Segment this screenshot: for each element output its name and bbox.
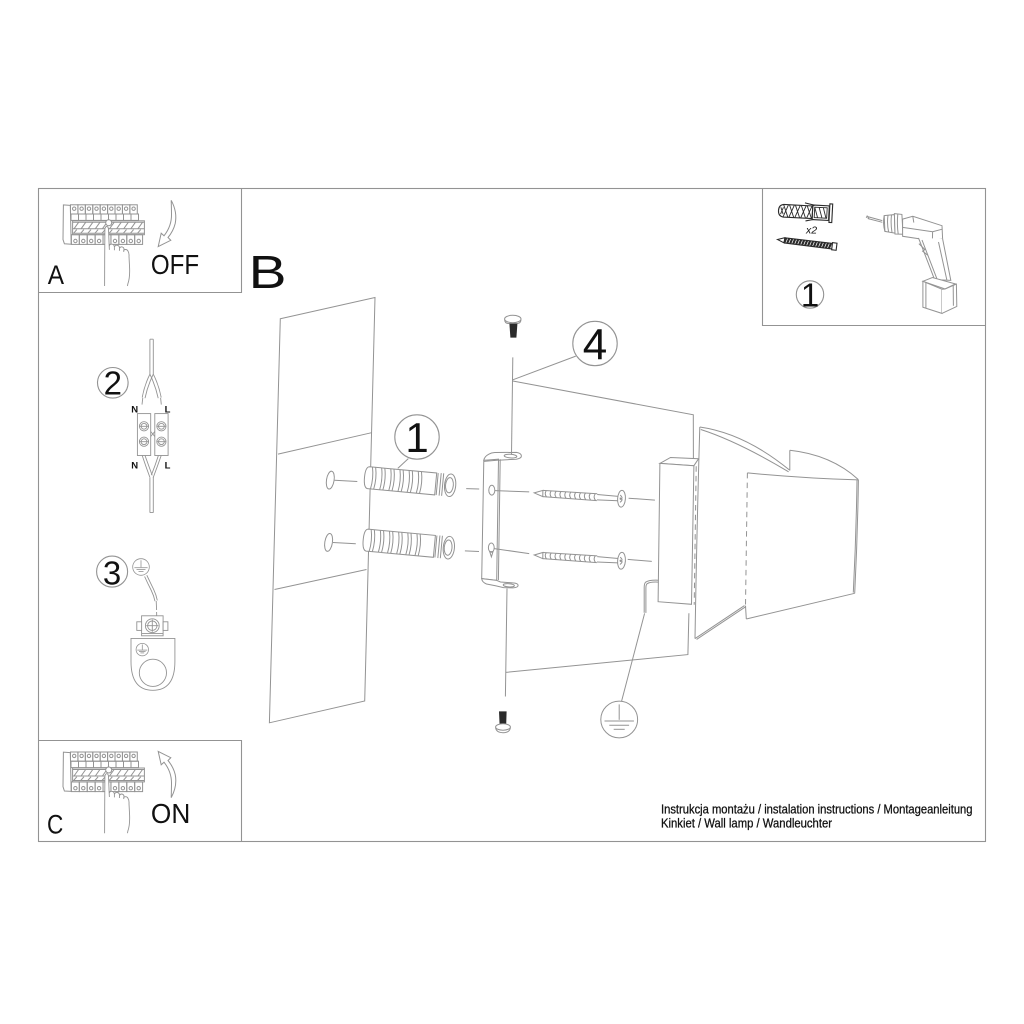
svg-text:Kinkiet / Wall lamp / Wandleuc: Kinkiet / Wall lamp / Wandleuchter — [661, 816, 833, 831]
svg-text:1: 1 — [801, 276, 819, 313]
svg-text:B: B — [249, 246, 287, 298]
svg-text:2: 2 — [104, 365, 122, 402]
svg-text:Instrukcja montażu / instalati: Instrukcja montażu / instalation instruc… — [661, 801, 973, 816]
svg-text:x2: x2 — [805, 225, 817, 237]
svg-text:N: N — [131, 461, 138, 472]
svg-text:1: 1 — [405, 414, 428, 461]
svg-text:A: A — [48, 260, 65, 290]
svg-text:ON: ON — [151, 798, 190, 829]
svg-text:N: N — [131, 404, 138, 415]
svg-text:3: 3 — [103, 555, 121, 592]
svg-text:L: L — [165, 404, 171, 415]
svg-text:OFF: OFF — [151, 249, 199, 280]
svg-text:4: 4 — [583, 321, 607, 370]
svg-text:C: C — [47, 810, 63, 840]
svg-text:L: L — [165, 461, 171, 472]
